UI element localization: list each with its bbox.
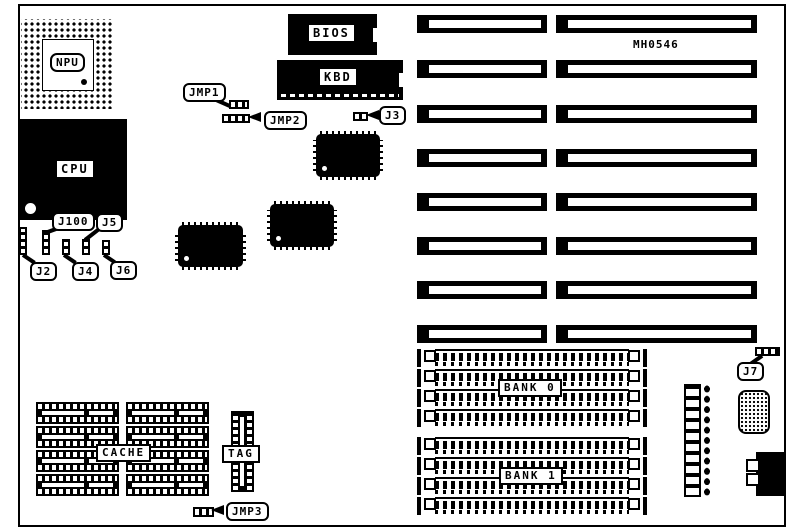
kbd-label: KBD	[320, 69, 356, 85]
pin1-dot	[322, 166, 327, 171]
tag-label: TAG	[222, 445, 260, 463]
callout-arrow	[211, 505, 224, 515]
isa-slot-segment	[556, 281, 757, 299]
jumper-jmp2	[222, 114, 250, 123]
pin1-dot	[276, 236, 281, 241]
cache-socket	[36, 474, 119, 496]
cache-socket	[126, 474, 209, 496]
pin1-dot	[81, 79, 87, 85]
connector-pins	[702, 384, 712, 497]
cpu-chip: CPU	[19, 119, 127, 220]
simm-clip	[417, 497, 437, 515]
simm-contacts	[435, 349, 629, 366]
j7-label: J7	[737, 362, 764, 381]
simm-clip	[627, 457, 647, 475]
simm-clip	[627, 477, 647, 495]
simm-clip	[417, 369, 437, 387]
isa-slot-segment	[556, 237, 757, 255]
npu-socket-center: NPU	[42, 39, 94, 91]
simm-clip	[627, 349, 647, 367]
simm-socket	[417, 437, 647, 455]
simm-clip	[417, 349, 437, 367]
jumper-j4	[62, 239, 70, 255]
cache-socket	[36, 402, 119, 424]
kbd-pin-row	[281, 94, 399, 97]
connector-header	[746, 473, 760, 486]
pin1-dot	[184, 256, 189, 261]
npu-socket: NPU	[21, 19, 112, 109]
isa-slot-segment	[556, 149, 757, 167]
chip-body	[270, 204, 334, 247]
j2-label: J2	[30, 262, 57, 281]
isa-slot-segment	[417, 281, 547, 299]
chip-notch	[399, 73, 403, 87]
cache-socket	[126, 402, 209, 424]
isa-slot-segment	[417, 15, 547, 33]
simm-clip	[417, 389, 437, 407]
j4-label: J4	[72, 262, 99, 281]
jumper-j6	[102, 240, 110, 255]
simm-clip	[627, 389, 647, 407]
cache-label: CACHE	[96, 444, 151, 462]
simm-socket	[417, 409, 647, 427]
keyboard-din-connector	[756, 452, 786, 496]
simm-contacts	[435, 409, 629, 426]
isa-slot-segment	[417, 325, 547, 343]
qfp-chip	[267, 201, 337, 250]
simm-socket	[417, 497, 647, 515]
simm-clip	[627, 409, 647, 427]
isa-slot-segment	[417, 60, 547, 78]
chip-body	[316, 134, 380, 177]
callout-arrow	[366, 110, 379, 120]
j100-label: J100	[52, 212, 95, 231]
connector-header	[746, 459, 760, 472]
isa-slot-segment	[556, 325, 757, 343]
cpu-label: CPU	[57, 161, 93, 177]
chip-body	[178, 225, 243, 267]
j6-label: J6	[110, 261, 137, 280]
connector-pins	[684, 384, 701, 497]
jmp2-label: JMP2	[264, 111, 307, 130]
bios-label: BIOS	[309, 25, 354, 41]
jumper-j2	[19, 227, 27, 255]
j3-label: J3	[379, 106, 406, 125]
qfp-chip	[313, 131, 383, 180]
simm-clip	[417, 477, 437, 495]
qfp-chip	[175, 222, 246, 270]
jmp1-label: JMP1	[183, 83, 226, 102]
callout-arrow	[248, 112, 261, 122]
npu-label: NPU	[50, 53, 85, 72]
bank0-label: BANK 0	[498, 379, 562, 397]
part-number: MH0546	[633, 38, 679, 51]
power-connector	[684, 384, 712, 497]
simm-clip	[417, 409, 437, 427]
simm-contacts	[435, 437, 629, 454]
isa-slot-segment	[556, 105, 757, 123]
simm-socket	[417, 349, 647, 367]
simm-contacts	[435, 497, 629, 514]
simm-clip	[417, 437, 437, 455]
jumper-jmp1	[229, 100, 249, 109]
pin1-dot	[25, 203, 36, 214]
chip-notch	[373, 28, 377, 42]
bios-chip: BIOS	[288, 14, 377, 55]
j5-label: J5	[96, 213, 123, 232]
speaker-component	[738, 390, 770, 434]
simm-clip	[417, 457, 437, 475]
simm-clip	[627, 497, 647, 515]
kbd-chip: KBD	[277, 60, 403, 100]
jmp3-label: JMP3	[226, 502, 269, 521]
simm-clip	[627, 369, 647, 387]
isa-slot-segment	[556, 193, 757, 211]
bank1-label: BANK 1	[499, 467, 563, 485]
simm-clip	[627, 437, 647, 455]
isa-slot-segment	[417, 193, 547, 211]
isa-slot-segment	[417, 105, 547, 123]
isa-slot-segment	[417, 149, 547, 167]
isa-slot-segment	[556, 60, 757, 78]
isa-slot-segment	[417, 237, 547, 255]
isa-slot-segment	[556, 15, 757, 33]
